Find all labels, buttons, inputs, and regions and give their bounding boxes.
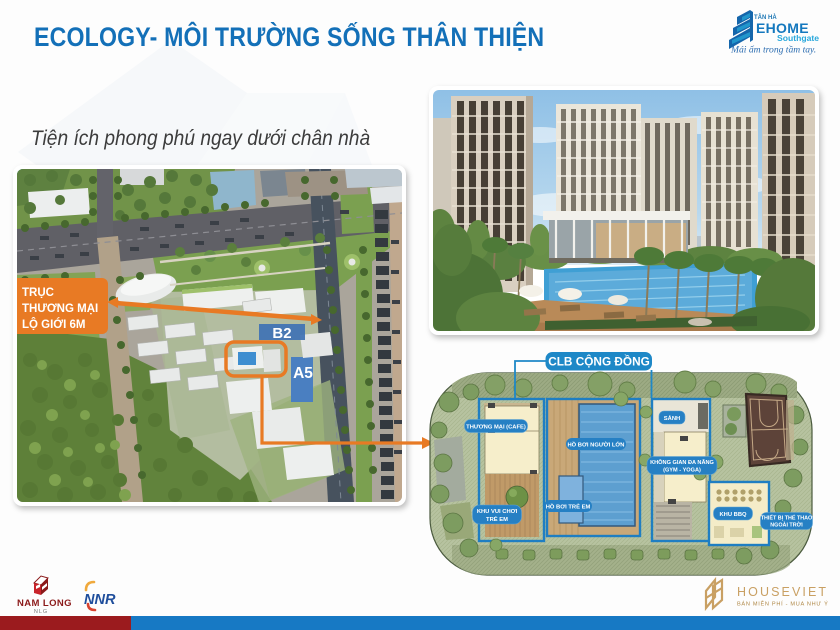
svg-text:KHÔNG GIAN ĐA NĂNG: KHÔNG GIAN ĐA NĂNG bbox=[650, 458, 714, 466]
svg-text:CLB CỘNG ĐỒNG: CLB CỘNG ĐỒNG bbox=[548, 355, 650, 369]
svg-text:(GYM - YOGA): (GYM - YOGA) bbox=[663, 468, 701, 474]
svg-text:HỒ BƠI TRẺ EM: HỒ BƠI TRẺ EM bbox=[546, 504, 591, 511]
svg-text:NLG: NLG bbox=[34, 609, 48, 615]
svg-text:BÁN MIỄN PHÍ - MUA NHƯ Ý: BÁN MIỄN PHÍ - MUA NHƯ Ý bbox=[737, 601, 829, 608]
svg-text:KHU BBQ: KHU BBQ bbox=[719, 512, 747, 518]
svg-text:HỒ BƠI NGƯỜI LỚN: HỒ BƠI NGƯỜI LỚN bbox=[567, 441, 624, 449]
svg-text:TRỤC: TRỤC bbox=[22, 287, 54, 299]
svg-text:HOUSEVIET: HOUSEVIET bbox=[737, 585, 828, 599]
svg-text:NNR: NNR bbox=[84, 592, 116, 608]
svg-text:B2: B2 bbox=[272, 325, 291, 342]
svg-text:LỘ GIỚI 6M: LỘ GIỚI 6M bbox=[22, 318, 85, 331]
svg-text:NGOÀI TRỜI: NGOÀI TRỜI bbox=[770, 521, 803, 529]
svg-text:NAM LONG: NAM LONG bbox=[17, 598, 72, 609]
svg-text:THIẾT BỊ THỂ THAO: THIẾT BỊ THỂ THAO bbox=[761, 515, 813, 522]
svg-text:TRẺ EM: TRẺ EM bbox=[486, 516, 508, 523]
svg-text:Southgate: Southgate bbox=[777, 33, 819, 43]
svg-text:THƯƠNG MẠI (CAFE): THƯƠNG MẠI (CAFE) bbox=[466, 425, 526, 431]
svg-text:KHU VUI CHƠI: KHU VUI CHƠI bbox=[477, 509, 518, 515]
svg-text:SẢNH: SẢNH bbox=[664, 415, 680, 422]
svg-text:THƯƠNG MẠI: THƯƠNG MẠI bbox=[22, 303, 98, 315]
svg-text:Mái ấm trong tầm tay.: Mái ấm trong tầm tay. bbox=[730, 45, 816, 56]
